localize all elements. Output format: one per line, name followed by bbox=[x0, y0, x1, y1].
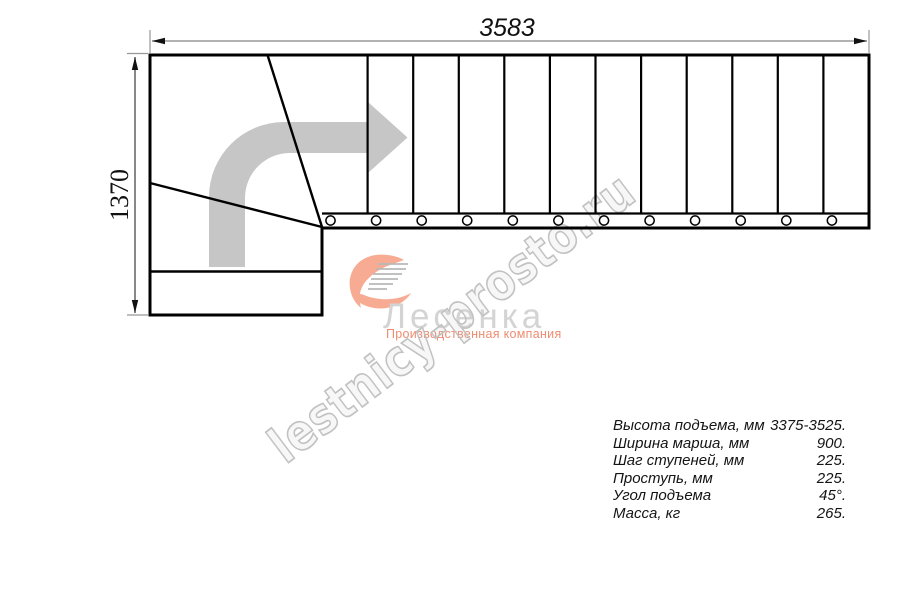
spec-row: Ширина марша, мм 900. bbox=[613, 435, 846, 453]
spec-label: Ширина марша, мм bbox=[613, 435, 749, 453]
stair-drawing-page: { "drawing": { "width_dim_label": "3583"… bbox=[0, 0, 900, 600]
spec-value: 265. bbox=[817, 505, 846, 523]
dimension-width-label: 3583 bbox=[479, 14, 535, 42]
tread-lines bbox=[368, 55, 824, 214]
spec-row: Шаг ступеней, мм 225. bbox=[613, 452, 846, 470]
stair-outline bbox=[150, 55, 869, 315]
spec-label: Высота подъема, мм bbox=[613, 417, 765, 435]
spec-value: 225. bbox=[817, 452, 846, 470]
spec-label: Угол подъема bbox=[613, 487, 711, 505]
spec-row: Высота подъема, мм 3375-3525. bbox=[613, 417, 846, 435]
spec-row: Масса, кг 265. bbox=[613, 505, 846, 523]
dimension-width: 3583 bbox=[150, 14, 869, 53]
spec-label: Шаг ступеней, мм bbox=[613, 452, 744, 470]
spec-value: 45°. bbox=[819, 487, 846, 505]
spec-value: 3375-3525. bbox=[770, 417, 846, 435]
dimension-height: 1370 bbox=[105, 54, 148, 316]
spec-value: 225. bbox=[817, 470, 846, 488]
spec-value: 900. bbox=[817, 435, 846, 453]
spec-row: Угол подъема 45°. bbox=[613, 487, 846, 505]
spec-label: Проступь, мм bbox=[613, 470, 713, 488]
spec-label: Масса, кг bbox=[613, 505, 680, 523]
dim-arrow-down-icon bbox=[132, 300, 138, 313]
dim-arrow-up-icon bbox=[132, 57, 138, 70]
dim-arrow-right-icon bbox=[854, 38, 867, 44]
stringer-hole-icons bbox=[326, 216, 837, 225]
dimension-height-label: 1370 bbox=[105, 169, 134, 221]
spec-row: Проступь, мм 225. bbox=[613, 470, 846, 488]
specs-table: Высота подъема, мм 3375-3525. Ширина мар… bbox=[613, 417, 846, 522]
dim-arrow-left-icon bbox=[152, 38, 165, 44]
